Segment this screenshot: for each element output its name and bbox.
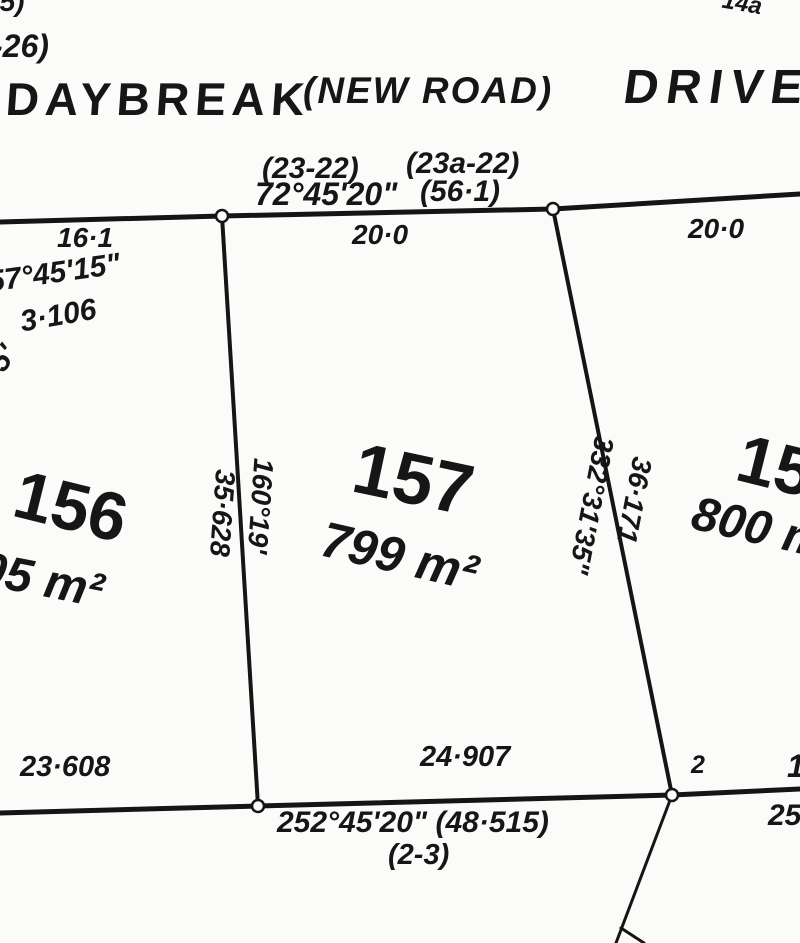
corner-peg-southeast <box>666 789 678 801</box>
frontage-total-distance: (56·1) <box>420 177 500 207</box>
corner-peg-northwest <box>216 210 228 222</box>
corner-peg-southwest <box>252 800 264 812</box>
boundary-lot157-lot158 <box>553 209 672 795</box>
rear-bearing-total: 252°45'20" (48·515) <box>277 808 549 838</box>
plan-ref-fragment-2: -26) <box>0 30 49 62</box>
corner-mark-label: 2 <box>691 753 705 778</box>
bottom-right-distance-fragment: 25 <box>768 801 800 831</box>
road-suffix: DRIVE <box>621 64 800 112</box>
corner-peg-northeast <box>547 203 559 215</box>
road-frontage-line <box>0 194 800 222</box>
rear-distance-157: 24·907 <box>420 743 510 772</box>
cadastral-survey-plan: { "road": { "name": "DAYBREAK", "qualifi… <box>0 0 800 943</box>
frontage-distance-158: 20·0 <box>688 215 744 243</box>
southeast-diagonal-boundary <box>616 795 672 943</box>
road-name: DAYBREAK <box>4 76 312 122</box>
bottom-right-upper-fragment: 1 <box>787 750 800 782</box>
rear-distance-156: 23·608 <box>20 753 110 782</box>
branch-boundary-line <box>621 928 644 943</box>
frontage-bearing: 72°45'20" <box>255 178 397 210</box>
rear-ref: (2-3) <box>388 841 449 870</box>
frontage-distance-156: 16·1 <box>57 224 113 252</box>
west-boundary-bearing: 160°19' <box>243 457 278 554</box>
frontage-distance-157: 20·0 <box>352 221 408 249</box>
plan-ref-fragment-1: 55) <box>0 0 24 16</box>
road-qualifier: (NEW ROAD) <box>303 72 553 109</box>
west-boundary-distance: 35·628 <box>205 469 239 558</box>
